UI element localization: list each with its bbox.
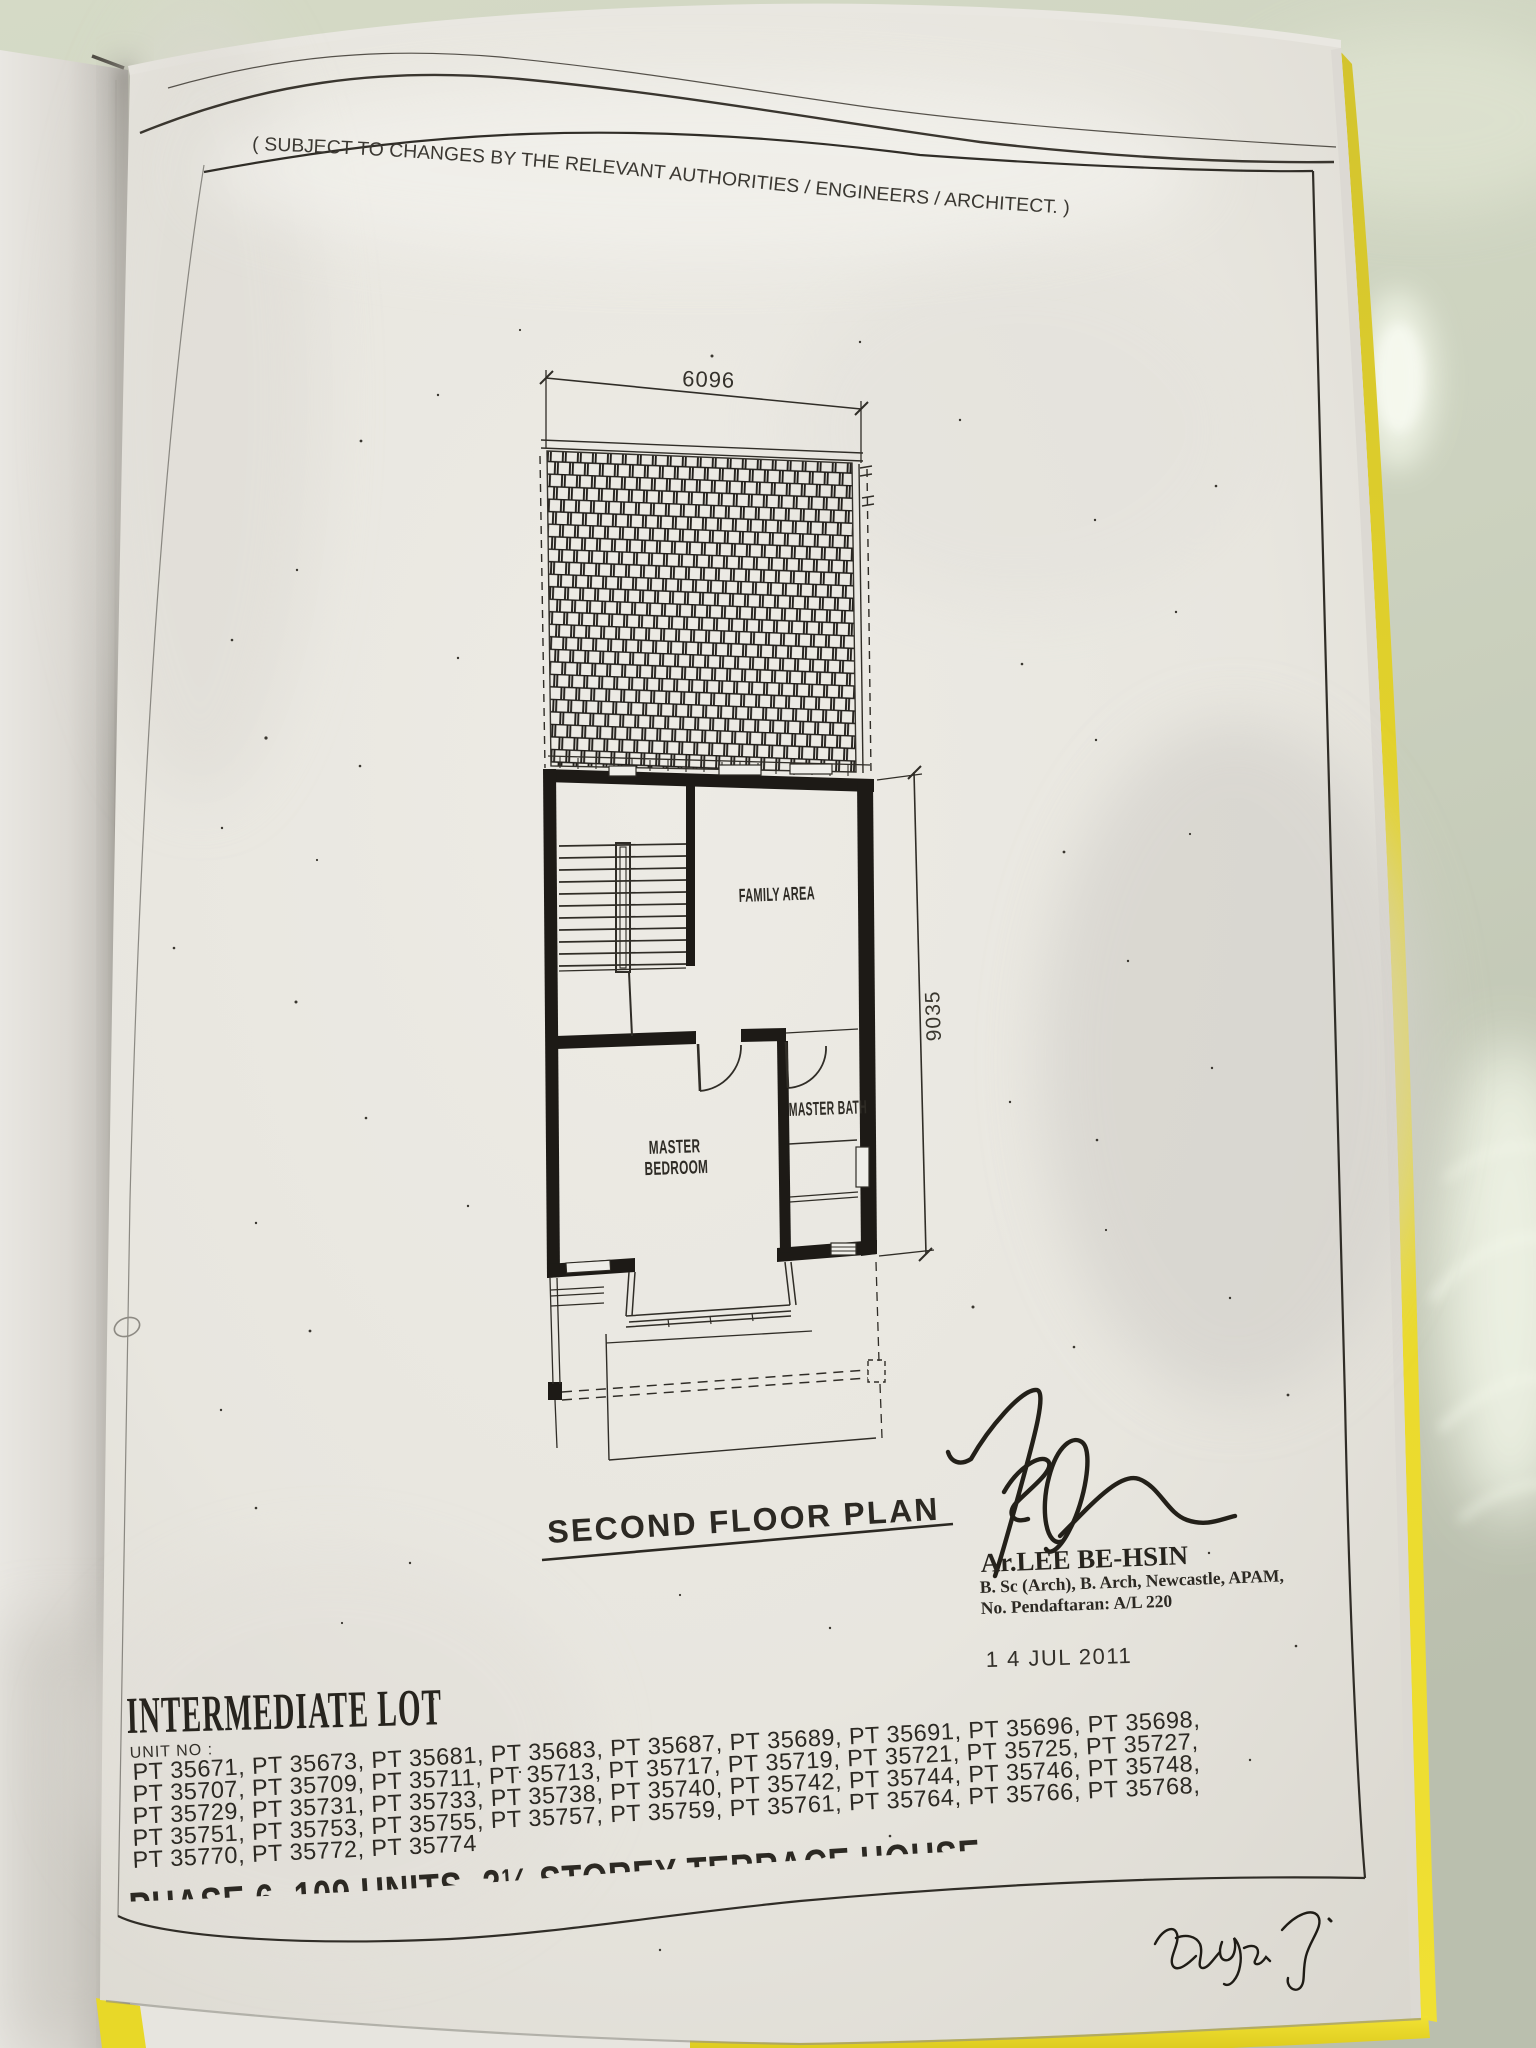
svg-text:6096: 6096 bbox=[682, 366, 736, 393]
svg-text:FAMILY AREA: FAMILY AREA bbox=[738, 883, 815, 906]
svg-text:INTERMEDIATE LOT: INTERMEDIATE LOT bbox=[126, 1679, 443, 1746]
svg-text:9035: 9035 bbox=[921, 990, 946, 1041]
svg-text:MASTER BATH: MASTER BATH bbox=[788, 1097, 867, 1121]
svg-text:1 4 JUL 2011: 1 4 JUL 2011 bbox=[985, 1643, 1132, 1672]
svg-text:MASTER: MASTER bbox=[648, 1137, 700, 1159]
svg-text:BEDROOM: BEDROOM bbox=[644, 1157, 708, 1180]
